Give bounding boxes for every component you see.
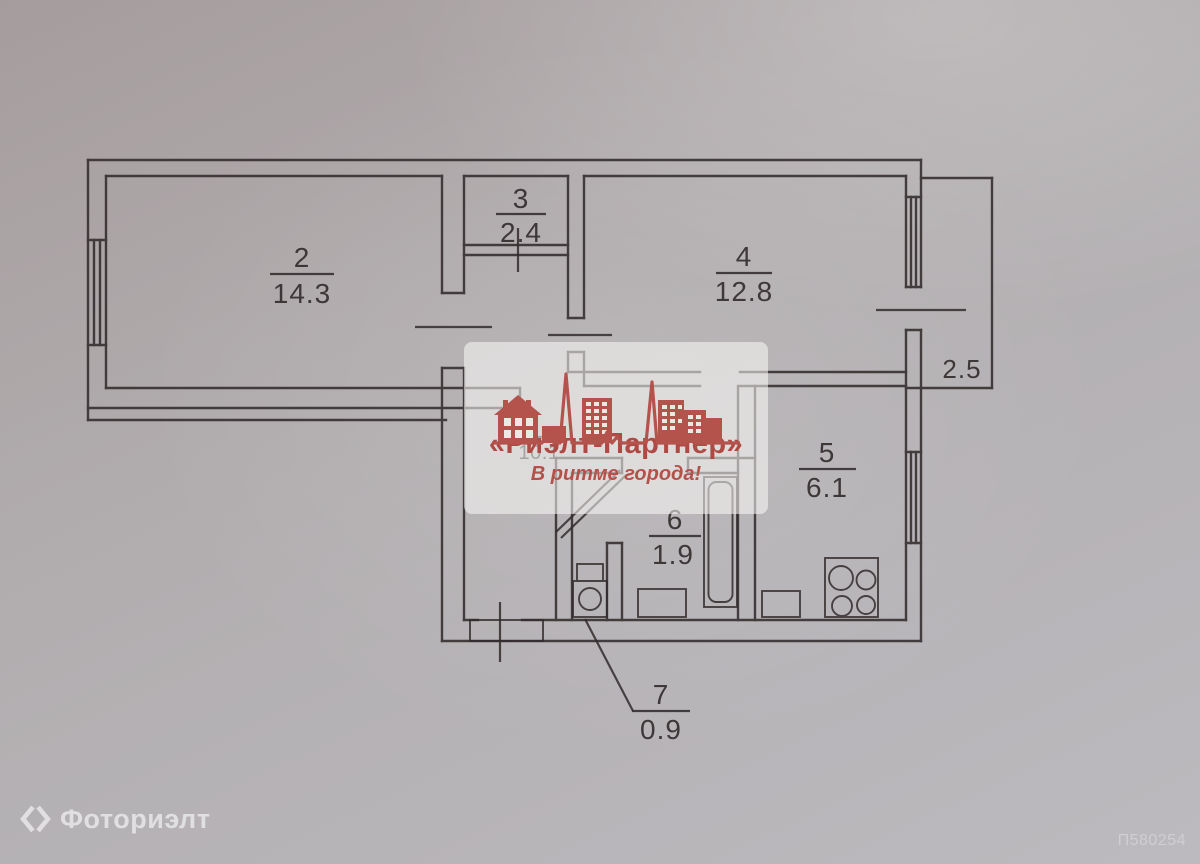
toilet: [573, 564, 607, 617]
room-2-area: 14.3: [273, 278, 332, 309]
leader-line-room7: [585, 619, 633, 711]
room-5-area: 6.1: [806, 472, 848, 503]
photo-service-label: Фоториэлт: [60, 804, 210, 835]
room-4-number: 4: [736, 241, 753, 272]
entry-threshold: [470, 620, 543, 641]
bathroom-sink: [638, 589, 686, 617]
room-3-area: 2.4: [500, 217, 542, 248]
room-7-area: 0.9: [640, 714, 682, 745]
room-2-number: 2: [294, 242, 311, 273]
room-6-area: 1.9: [652, 539, 694, 570]
room-5-number: 5: [819, 437, 836, 468]
room-7-number: 7: [653, 679, 670, 710]
agency-watermark: «Риэлт-Партнер» В ритме города!: [464, 342, 768, 514]
floor-plan-photo: 2 14.3 3 2.4 4 12.8 5 6.1 6 1.9 7 0.9 10…: [0, 0, 1200, 864]
kitchen-sink: [762, 591, 800, 617]
room-3-number: 3: [513, 183, 530, 214]
diamond-icon: [20, 804, 51, 835]
balcony-dimension: 2.5: [942, 354, 981, 384]
room-4-area: 12.8: [715, 276, 774, 307]
agency-tagline-text: В ритме города!: [531, 464, 701, 484]
stove: [825, 558, 878, 617]
photo-service-watermark: Фоториэлт: [20, 804, 210, 835]
agency-logo-skyline-icon: [490, 364, 742, 452]
photo-id-label: П580254: [1118, 832, 1186, 850]
